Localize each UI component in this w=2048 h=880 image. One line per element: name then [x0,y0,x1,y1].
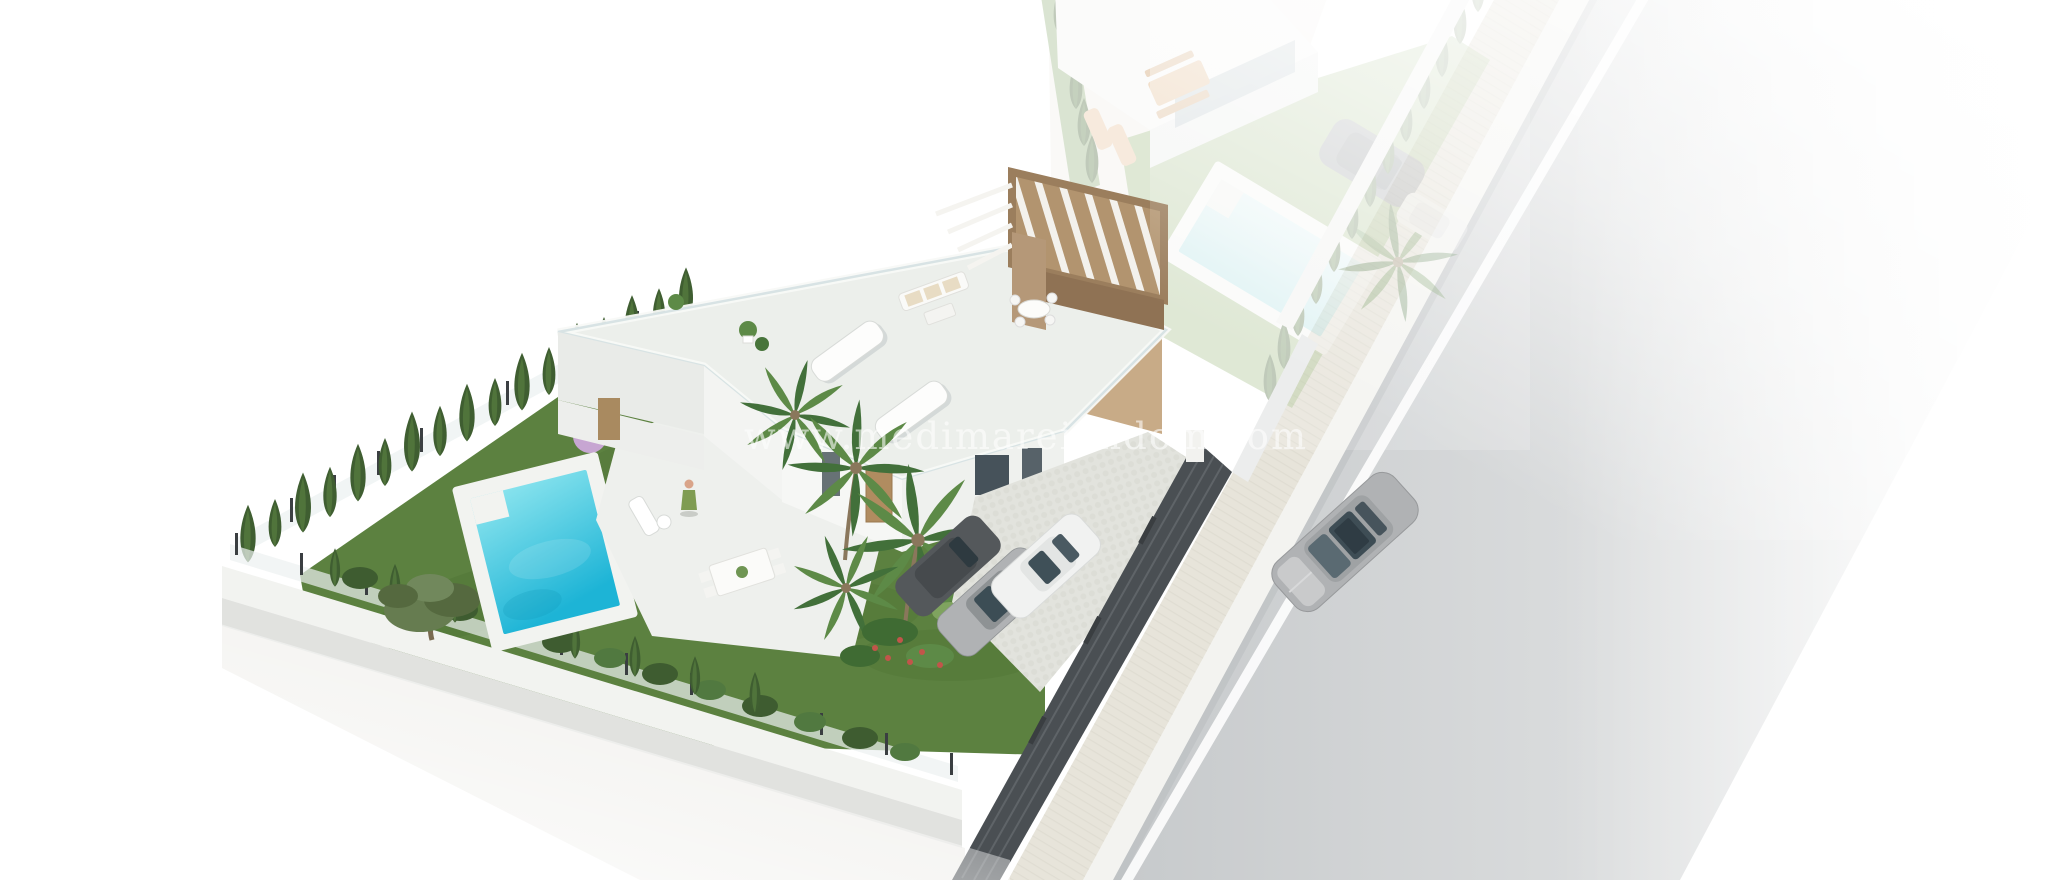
villa-render: www.medimareiendom.com [0,0,2048,880]
render-canvas: www.medimareiendom.com [0,0,2048,880]
side-door [598,398,620,440]
watermark-text: www.medimareiendom.com [744,415,1308,458]
fade-right [1560,0,2048,880]
